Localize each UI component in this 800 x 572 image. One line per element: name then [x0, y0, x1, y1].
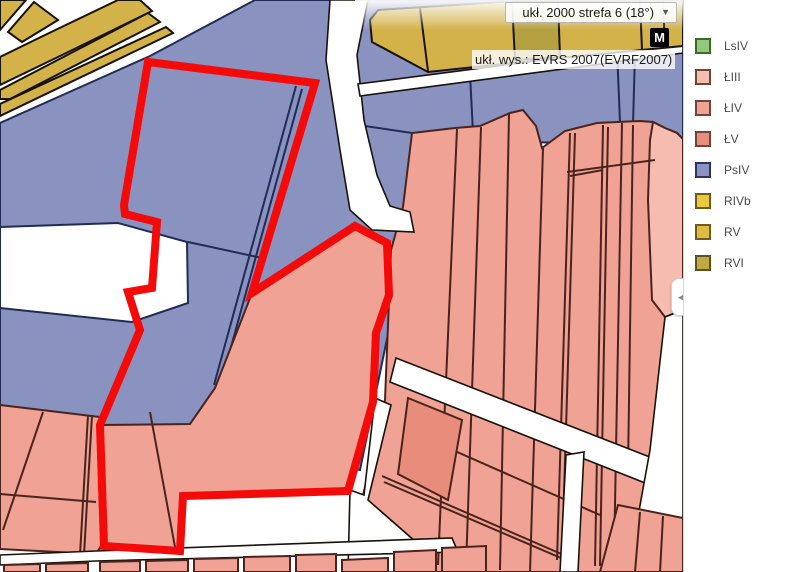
- marker-button[interactable]: M: [650, 28, 669, 47]
- crs-selector-label: ukł. 2000 strefa 6 (18°): [522, 5, 654, 20]
- legend-swatch: [695, 255, 711, 271]
- legend-item-label: ŁIV: [724, 101, 742, 115]
- legend-swatch: [695, 224, 711, 240]
- legend-item-label: RVI: [724, 256, 744, 270]
- legend-item-lsiv: LsIV: [695, 38, 748, 54]
- app-window: ukł. 2000 strefa 6 (18°) ▼ M ukł. wys.: …: [0, 0, 800, 572]
- legend-item-label: ŁIII: [724, 70, 741, 84]
- legend-item-label: RIVb: [724, 194, 751, 208]
- chevron-down-icon: ▼: [661, 8, 670, 17]
- chevron-left-icon: ◀: [677, 293, 683, 302]
- legend-swatch: [695, 162, 711, 178]
- legend-swatch: [695, 69, 711, 85]
- legend-panel: LsIV ŁIII ŁIV ŁV PsIV RIVb RV RVI: [683, 0, 800, 572]
- map-canvas[interactable]: [0, 0, 683, 572]
- legend-swatch: [695, 38, 711, 54]
- crs-selector[interactable]: ukł. 2000 strefa 6 (18°) ▼: [505, 2, 677, 23]
- legend-swatch: [695, 100, 711, 116]
- legend-item-rvi: RVI: [695, 255, 744, 271]
- legend-item-lv: ŁV: [695, 131, 739, 147]
- legend-item-label: LsIV: [724, 39, 748, 53]
- legend-swatch: [695, 193, 711, 209]
- legend-item-label: ŁV: [724, 132, 739, 146]
- map-viewport[interactable]: [0, 0, 683, 572]
- legend-item-label: PsIV: [724, 163, 749, 177]
- legend-item-label: RV: [724, 225, 740, 239]
- legend-swatch: [695, 131, 711, 147]
- legend-item-liii: ŁIII: [695, 69, 741, 85]
- legend-item-rv: RV: [695, 224, 740, 240]
- legend-item-rivb: RIVb: [695, 193, 751, 209]
- height-system-label: ukł. wys.: EVRS 2007(EVRF2007): [472, 50, 675, 69]
- legend-item-psiv: PsIV: [695, 162, 749, 178]
- legend-item-liv: ŁIV: [695, 100, 742, 116]
